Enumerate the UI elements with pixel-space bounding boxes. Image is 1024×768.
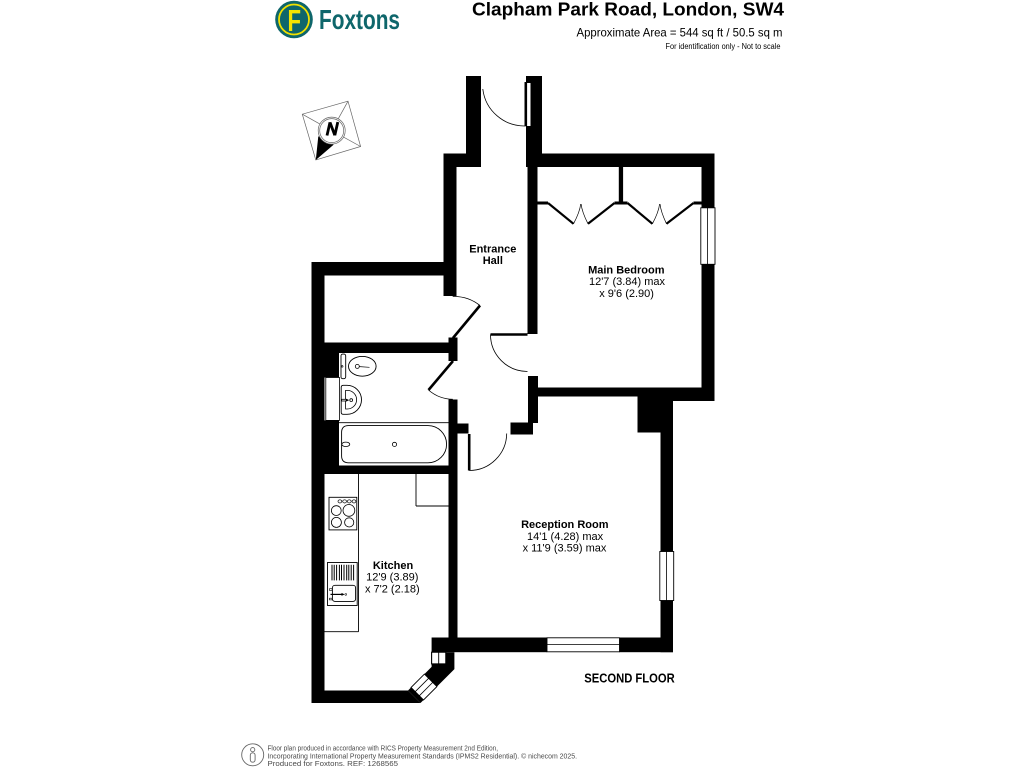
- svg-text:For identification only - Not: For identification only - Not to scale: [666, 42, 781, 51]
- svg-text:Clapham Park Road, London, SW4: Clapham Park Road, London, SW4: [472, 0, 784, 20]
- svg-text:Incorporating International Pr: Incorporating International Property Mea…: [268, 752, 578, 760]
- svg-text:Floor plan produced in accorda: Floor plan produced in accordance with R…: [268, 746, 499, 753]
- svg-text:x 11'9 (3.59) max: x 11'9 (3.59) max: [523, 543, 607, 555]
- svg-text:Main Bedroom: Main Bedroom: [588, 265, 665, 277]
- svg-text:Foxtons: Foxtons: [319, 4, 400, 35]
- svg-text:x 7'2 (2.18): x 7'2 (2.18): [365, 583, 420, 595]
- svg-text:Approximate Area = 544 sq ft /: Approximate Area = 544 sq ft / 50.5 sq m: [577, 26, 783, 40]
- svg-text:F: F: [288, 3, 302, 38]
- svg-text:Reception Room: Reception Room: [521, 519, 609, 531]
- svg-text:SECOND FLOOR: SECOND FLOOR: [584, 672, 675, 686]
- svg-text:x 9'6 (2.90): x 9'6 (2.90): [599, 288, 654, 300]
- svg-text:14'1 (4.28) max: 14'1 (4.28) max: [527, 531, 604, 543]
- svg-text:Kitchen: Kitchen: [373, 560, 414, 572]
- svg-text:Hall: Hall: [483, 255, 503, 267]
- svg-text:12'9 (3.89): 12'9 (3.89): [366, 572, 418, 584]
- svg-text:Produced for Foxtons. REF: 1: Produced for Foxtons. REF: 1268565: [268, 761, 399, 768]
- svg-text:12'7 (3.84) max: 12'7 (3.84) max: [589, 276, 666, 288]
- svg-text:Entrance: Entrance: [469, 244, 516, 256]
